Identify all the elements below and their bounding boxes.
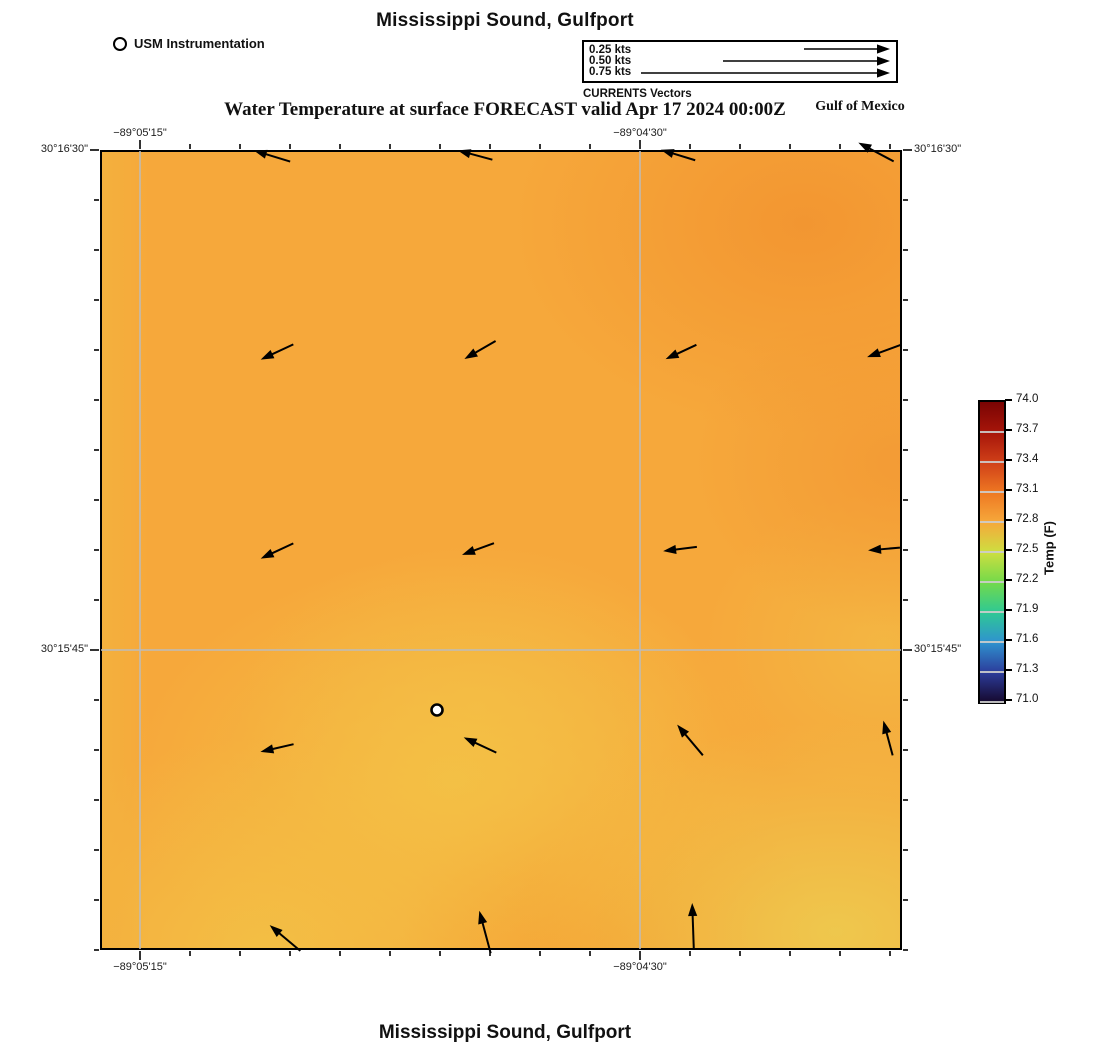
colorbar-tick-label: 71.6 [1016,633,1038,645]
axis-tick-label: −89°05'15" [113,127,167,139]
colorbar-gridline [980,581,1004,583]
colorbar-tick-label: 71.9 [1016,603,1038,615]
colorbar-tick [1005,489,1012,491]
colorbar-tick-label: 72.2 [1016,573,1038,585]
colorbar-tick-label: 71.3 [1016,663,1038,675]
colorbar-tick-label: 71.0 [1016,693,1038,705]
currents-vector-legend-box: 0.25 kts 0.50 kts 0.75 kts [582,40,898,83]
colorbar-tick [1005,429,1012,431]
axis-tick-label: 30°16'30" [914,143,961,155]
colorbar-gridline [980,641,1004,643]
station-legend-label: USM Instrumentation [134,36,265,51]
axis-tick-label: 30°16'30" [13,143,88,155]
colorbar-gridline [980,491,1004,493]
axis-tick-label: −89°05'15" [113,961,167,973]
colorbar-tick [1005,639,1012,641]
colorbar-tick [1005,549,1012,551]
colorbar-tick-label: 73.1 [1016,483,1038,495]
colorbar-gridline [980,551,1004,553]
colorbar-gridline [980,671,1004,673]
map-temperature-field[interactable] [100,150,902,950]
footer-title: Mississippi Sound, Gulfport [0,1022,1010,1044]
colorbar-tick [1005,609,1012,611]
colorbar-gridline [980,461,1004,463]
axis-tick-label: −89°04'30" [613,127,667,139]
vector-legend-arrows [584,42,896,81]
station-legend: USM Instrumentation [113,36,265,51]
colorbar-tick [1005,399,1012,401]
colorbar-tick [1005,459,1012,461]
colorbar-gridline [980,611,1004,613]
colorbar-tick [1005,579,1012,581]
plot-page: Mississippi Sound, Gulfport USM Instrume… [0,0,1100,1050]
axis-tick-label: 30°15'45" [914,643,961,655]
axis-tick-label: 30°15'45" [13,643,88,655]
colorbar-tick-label: 74.0 [1016,393,1038,405]
colorbar-axis-label: Temp (F) [1042,521,1057,575]
colorbar-tick-label: 73.7 [1016,423,1038,435]
region-label: Gulf of Mexico [770,99,950,115]
colorbar-tick [1005,519,1012,521]
colorbar-tick [1005,699,1012,701]
station-circle-icon [113,37,127,51]
axis-tick-label: −89°04'30" [613,961,667,973]
colorbar-gridline [980,431,1004,433]
colorbar-tick-label: 72.5 [1016,543,1038,555]
colorbar-tick-label: 73.4 [1016,453,1038,465]
colorbar [978,400,1006,704]
colorbar-tick [1005,669,1012,671]
colorbar-tick-label: 72.8 [1016,513,1038,525]
colorbar-gridline [980,521,1004,523]
page-title: Mississippi Sound, Gulfport [0,10,1010,32]
colorbar-gridline [980,701,1004,703]
